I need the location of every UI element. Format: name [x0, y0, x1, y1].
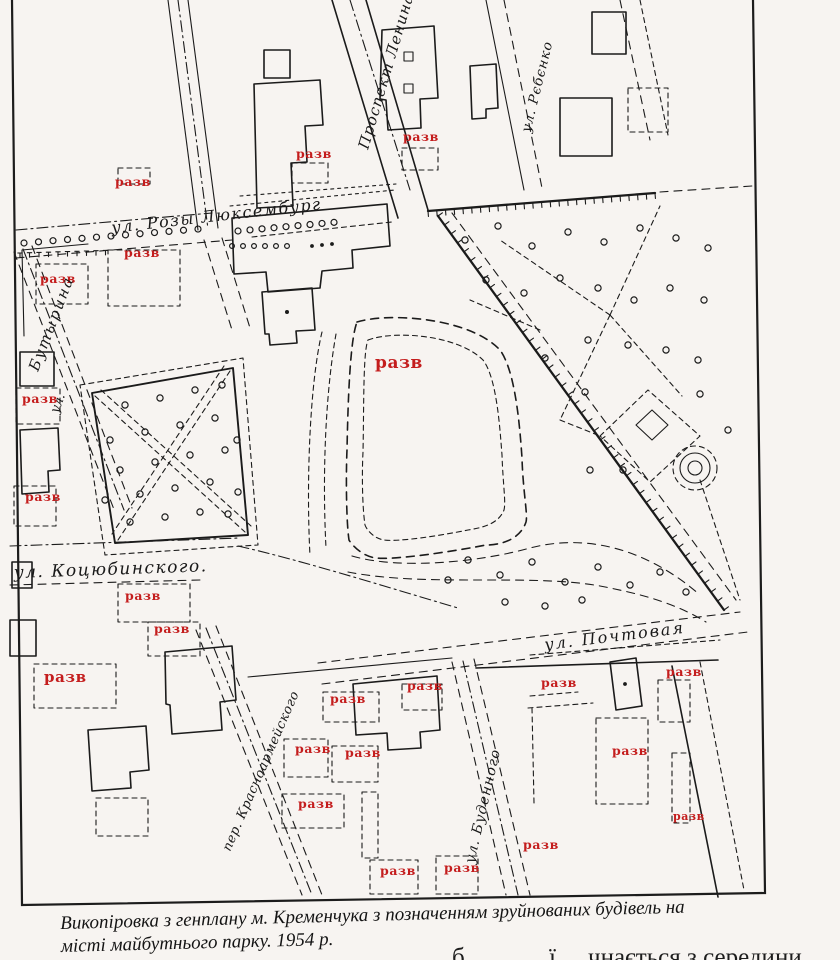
scanned-map-page: { "map": { "ink_color": "#1b1b1b", "razv…: [0, 0, 840, 960]
tree-circle: [107, 437, 113, 443]
razv-label: разв: [115, 174, 151, 189]
buildings-destroyed-dashed: [14, 88, 744, 894]
tree-circle: [274, 244, 279, 249]
tree-circle: [192, 387, 198, 393]
razv-label: разв: [330, 691, 366, 706]
tree-circle: [295, 223, 301, 229]
tree-circle: [21, 240, 27, 246]
hatch-tick: [575, 401, 579, 404]
map-drawing: развразвразвразвразвразвразвразвразвразв…: [0, 0, 840, 912]
tree-circle: [79, 235, 85, 241]
tree-circle: [285, 244, 290, 249]
tree-circle: [663, 347, 669, 353]
genplan-map: развразвразвразвразвразвразвразвразвразв…: [0, 0, 840, 912]
tree-circle: [557, 275, 563, 281]
razv-label: разв: [44, 668, 87, 686]
tree-circle: [601, 239, 607, 245]
street-label-pereulok: пер. Красноармейского: [220, 689, 303, 854]
razv-label: разв: [125, 588, 161, 603]
tree-circle: [529, 243, 535, 249]
razv-label: разв: [541, 675, 577, 690]
tree-circle: [207, 479, 213, 485]
tree-circle: [701, 297, 707, 303]
tree-circle: [497, 572, 503, 578]
tree-circle: [212, 415, 218, 421]
razv-labels: развразвразвразвразвразвразвразвразвразв…: [22, 129, 705, 878]
tree-circle: [152, 459, 158, 465]
tree-circle: [673, 235, 679, 241]
hatch-tick: [588, 419, 592, 422]
tree-circle: [50, 238, 56, 244]
tree-circle: [259, 226, 265, 232]
tree-circle: [187, 452, 193, 458]
trees: [18, 219, 731, 609]
tree-circle: [595, 285, 601, 291]
hatch-tick: [718, 598, 722, 601]
razv-label: разв: [403, 129, 439, 144]
hatch-tick: [705, 580, 709, 583]
hatch-tick: [471, 258, 475, 261]
tree-circle: [625, 342, 631, 348]
hatch-tick: [451, 231, 455, 234]
hatch-tick: [627, 472, 631, 475]
tree-circle: [157, 395, 163, 401]
hatch-tick: [510, 311, 514, 314]
tree-circle: [529, 559, 535, 565]
hatch-tick: [692, 562, 696, 565]
hatch-tick: [497, 293, 501, 296]
tree-circle: [307, 222, 313, 228]
razv-label: разв: [380, 863, 416, 878]
hatch-tick: [640, 490, 644, 493]
street-label-rebenko: ул. Рєбєнко: [518, 39, 556, 135]
tree-circle: [595, 564, 601, 570]
hatch-tick: [679, 544, 683, 547]
tree-circle: [462, 237, 468, 243]
razv-label: разв: [673, 810, 705, 823]
street-labels: ул. Розы Люксембург ул. Коцюбинского. ул…: [12, 0, 685, 866]
street-label-butyrina: Бутырина: [25, 273, 78, 374]
tree-circle: [695, 357, 701, 363]
park-paths: [470, 206, 740, 600]
razv-label: разв: [345, 745, 381, 760]
hatch-tick: [562, 383, 566, 386]
tree-circle: [657, 569, 663, 575]
razv-label: разв: [25, 489, 61, 504]
hatch-tick: [464, 249, 468, 252]
hatch-tick: [659, 517, 663, 520]
hatch-tick: [568, 392, 572, 395]
tree-circle: [65, 237, 71, 243]
tree-circle: [137, 491, 143, 497]
cut-off-text-line: б ї чнається з середини: [0, 944, 840, 960]
hatch-tick: [523, 329, 527, 332]
tree-circle: [627, 582, 633, 588]
hatch-tick: [614, 455, 618, 458]
tree-circle: [263, 244, 268, 249]
hatch-tick: [549, 365, 553, 368]
hatch-tick: [711, 589, 715, 592]
tree-circle: [283, 224, 289, 230]
tree-circle: [502, 599, 508, 605]
tree-circle: [241, 244, 246, 249]
hatch-tick: [445, 222, 449, 225]
razv-label: разв: [407, 678, 443, 693]
kerb-tick: [94, 251, 98, 256]
hatch-tick: [594, 428, 598, 431]
tree-circle: [579, 597, 585, 603]
tree-circle: [705, 245, 711, 251]
tree-circle: [94, 234, 100, 240]
hatch-tick: [633, 481, 637, 484]
tree-circle: [631, 297, 637, 303]
street-label-rozy-luxemburg: ул. Розы Люксембург: [109, 194, 322, 237]
tree-circle: [252, 244, 257, 249]
tree-circle: [331, 219, 337, 225]
street-label-kotsubinskogo: ул. Коцюбинского.: [12, 556, 207, 583]
hatch-tick: [477, 266, 481, 269]
razv-label: разв: [295, 741, 331, 756]
hatch-tick: [653, 508, 657, 511]
razv-label: разв: [523, 837, 559, 852]
razv-label: разв: [375, 353, 423, 373]
street-lines: [10, 0, 748, 895]
tree-circle: [683, 589, 689, 595]
tree-circle: [122, 402, 128, 408]
map-frame: [12, 0, 765, 905]
tree-circle: [667, 285, 673, 291]
cutoff-fragment-1: б: [452, 944, 465, 960]
hatch-tick: [503, 302, 507, 305]
tree-circle: [565, 229, 571, 235]
tree-circle: [585, 337, 591, 343]
tree-circle: [697, 391, 703, 397]
tree-circle: [521, 290, 527, 296]
tree-circle: [271, 225, 277, 231]
hatch-tick: [620, 463, 624, 466]
tree-circle: [587, 467, 593, 473]
tree-circle: [197, 509, 203, 515]
razv-label: разв: [154, 621, 190, 636]
tree-circle: [235, 489, 241, 495]
hatch-tick: [724, 607, 728, 610]
hatch-tick: [490, 284, 494, 287]
razv-label: разв: [612, 743, 648, 758]
hatch-tick: [438, 213, 442, 216]
hatch-tick: [458, 240, 462, 243]
hatch-tick: [529, 338, 533, 341]
razv-label: разв: [298, 796, 334, 811]
hatch-tick: [672, 535, 676, 538]
tree-circle: [102, 497, 108, 503]
tree-circle: [495, 223, 501, 229]
razv-label: разв: [296, 146, 332, 161]
tree-circle: [172, 485, 178, 491]
hatch-tick: [581, 410, 585, 413]
razv-label: разв: [124, 245, 160, 260]
tree-circle: [235, 228, 241, 234]
tree-circle: [162, 514, 168, 520]
tree-circle: [222, 447, 228, 453]
tree-circle: [637, 225, 643, 231]
hatch-tick: [555, 374, 559, 377]
street-label-budennogo: ул. Буденного: [462, 747, 504, 865]
hatch-tick: [646, 499, 650, 502]
tree-circle: [36, 239, 42, 245]
hatch-tick: [698, 571, 702, 574]
square-park-block: [80, 358, 258, 555]
hatch-tick: [666, 526, 670, 529]
tree-circle: [177, 422, 183, 428]
tree-circle: [542, 603, 548, 609]
hatch-tick: [685, 553, 689, 556]
tree-circle: [319, 220, 325, 226]
razv-label: разв: [666, 664, 702, 679]
tree-circle: [725, 427, 731, 433]
cutoff-fragment-3: чнається з середини: [588, 944, 802, 960]
hatch-tick: [536, 347, 540, 350]
cutoff-fragment-2: ї: [549, 944, 556, 960]
tree-circle: [247, 227, 253, 233]
